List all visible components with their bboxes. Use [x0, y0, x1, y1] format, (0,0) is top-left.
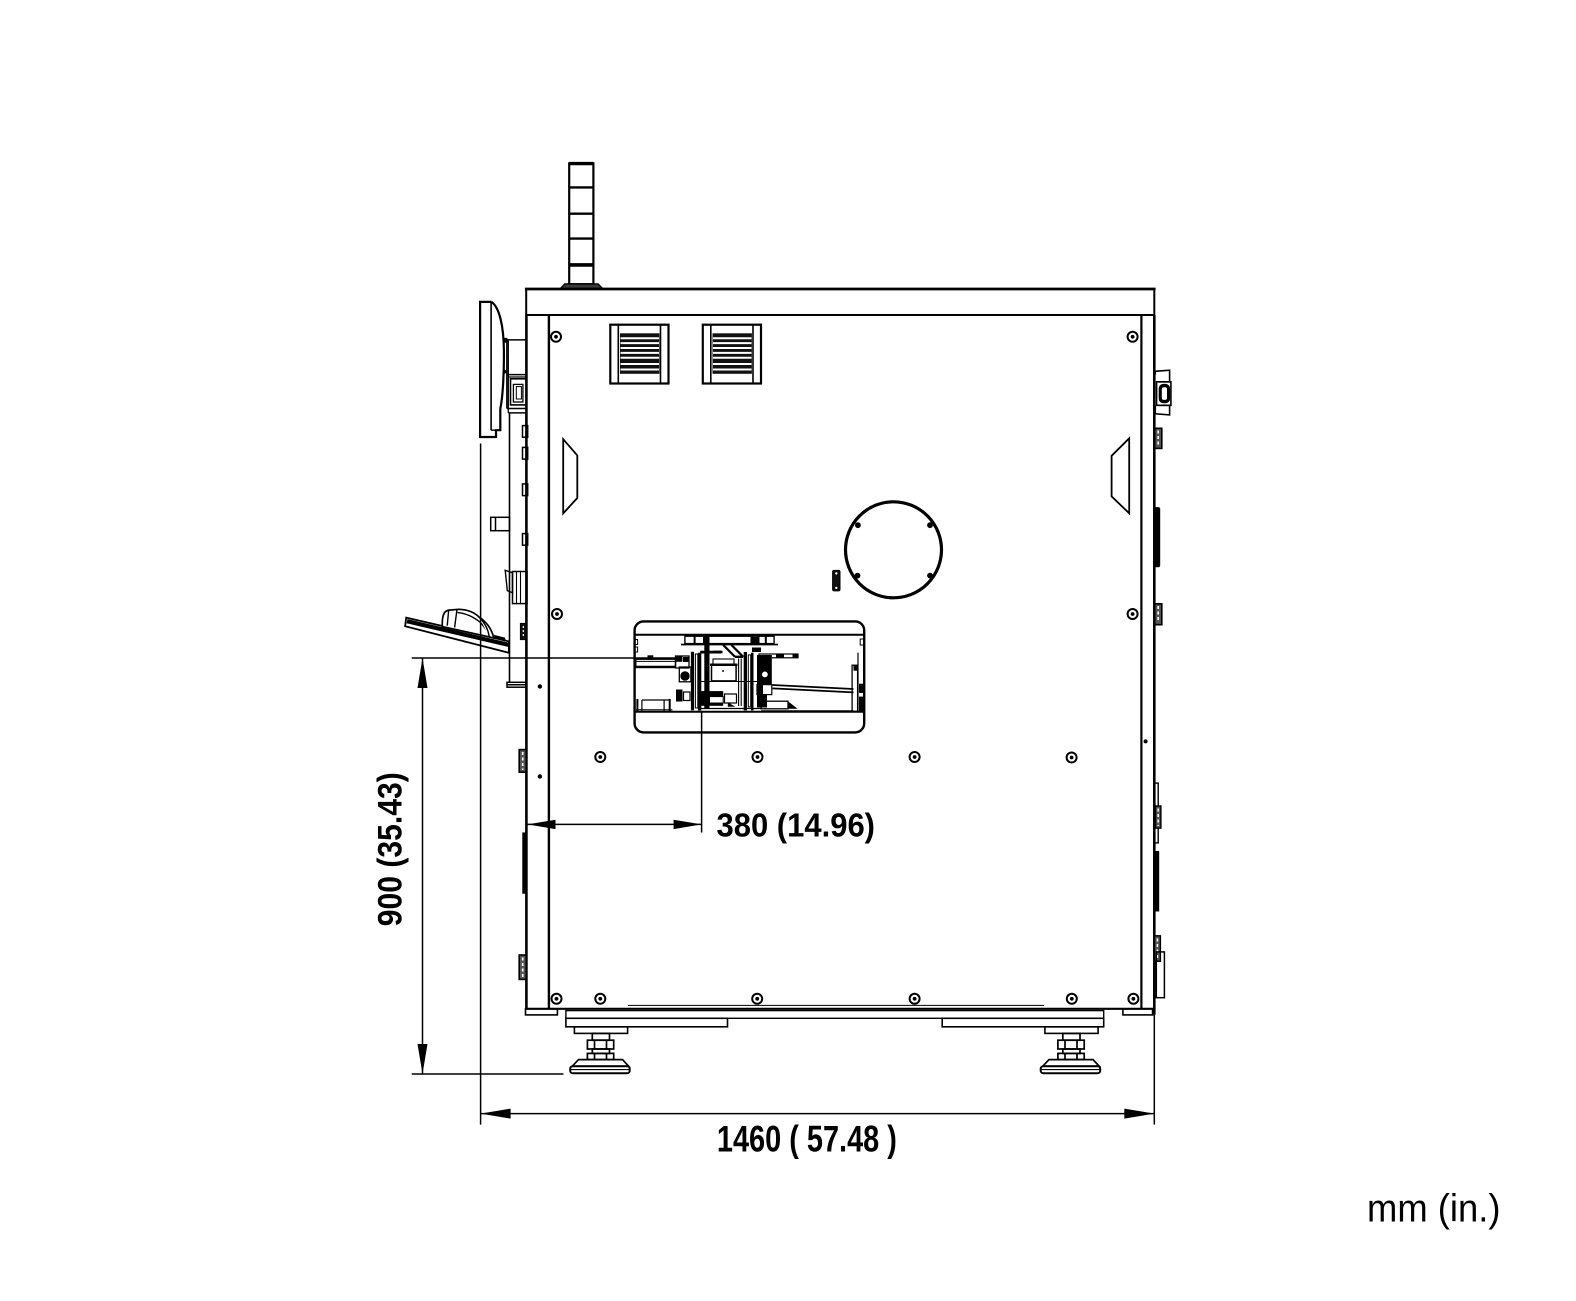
svg-text:380 (14.96): 380 (14.96)	[717, 807, 876, 844]
svg-text:900 (35.43): 900 (35.43)	[372, 772, 410, 926]
svg-text:1460 ( 57.48 ): 1460 ( 57.48 )	[717, 1118, 897, 1159]
svg-text:mm (in.): mm (in.)	[1367, 1188, 1501, 1231]
